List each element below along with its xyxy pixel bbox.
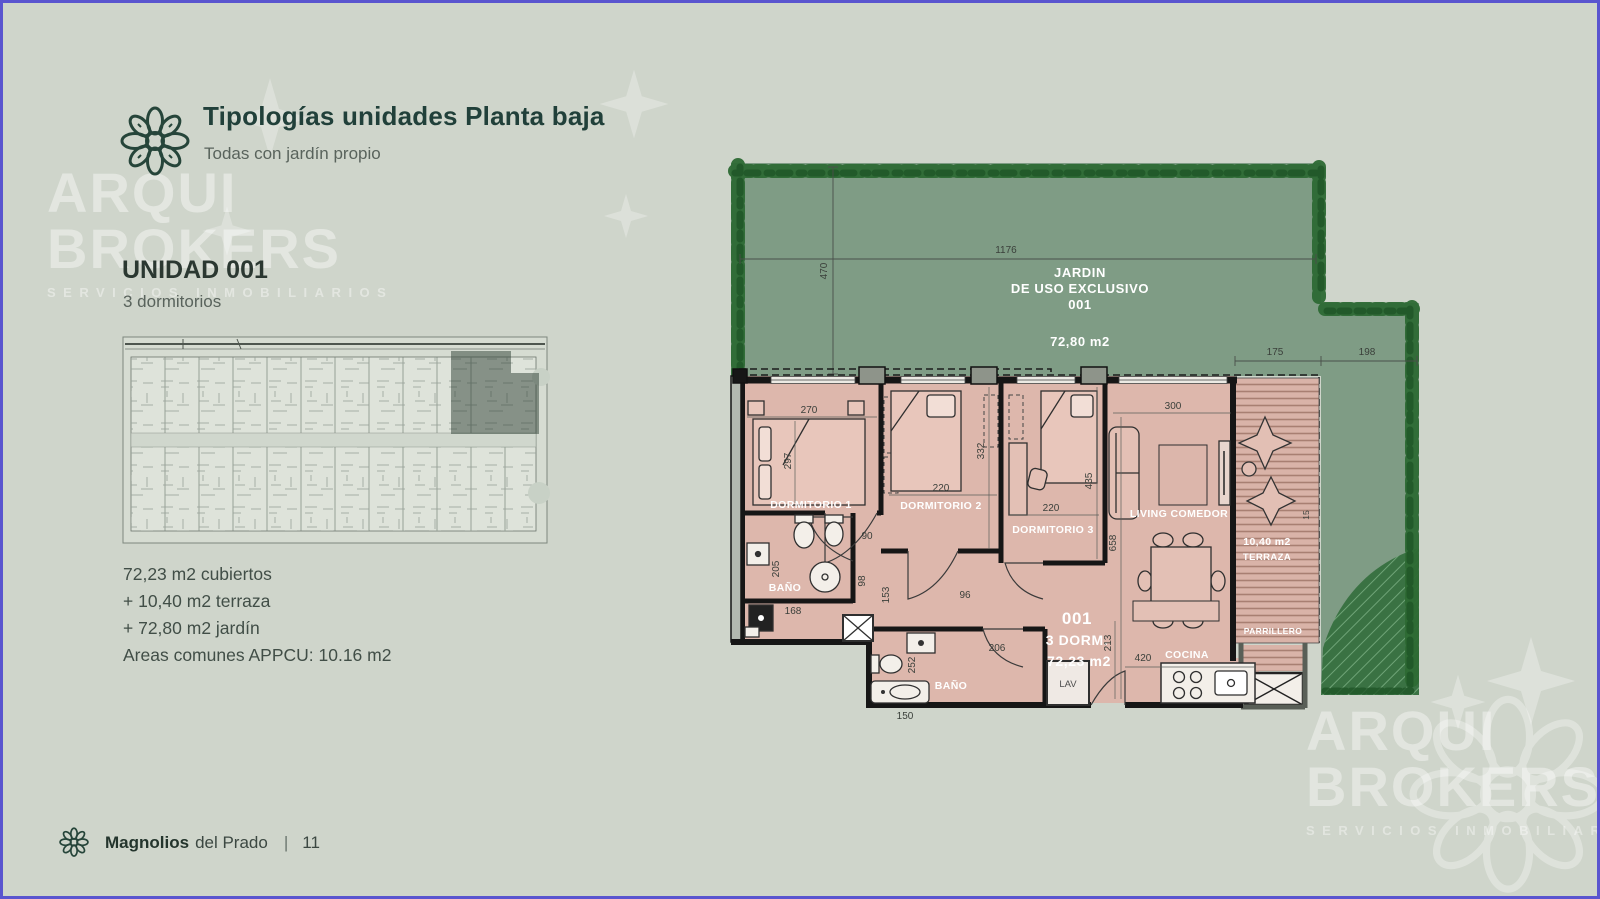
unit-tag-number: 001 bbox=[1062, 609, 1092, 628]
footer-project-suffix: del Prado bbox=[195, 833, 268, 853]
dim-15: 15 bbox=[1301, 510, 1311, 520]
sideboard bbox=[1133, 601, 1219, 621]
watermark-line1: ARQUI bbox=[47, 165, 393, 221]
dim-153: 153 bbox=[881, 586, 892, 603]
sofa bbox=[1109, 427, 1139, 519]
label-parrillero: PARRILLERO bbox=[1244, 626, 1303, 636]
unit-areas: 72,23 m2 cubiertos + 10,40 m2 terraza + … bbox=[123, 561, 391, 669]
footer-project-name: Magnolios bbox=[105, 833, 189, 853]
brochure-page: ARQUI BROKERS SERVICIOS INMOBILIARIOS bbox=[0, 0, 1600, 899]
dim-96: 96 bbox=[959, 590, 971, 601]
dim-213: 213 bbox=[1103, 634, 1114, 651]
area-terrace: + 10,40 m2 terraza bbox=[123, 588, 391, 615]
label-lav: LAV bbox=[1059, 679, 1077, 690]
coffee-table bbox=[1159, 445, 1207, 505]
watermark-line1: ARQUI bbox=[1306, 703, 1600, 759]
area-covered: 72,23 m2 cubiertos bbox=[123, 561, 391, 588]
star-watermark bbox=[595, 65, 673, 143]
dim-garden-d: 470 bbox=[819, 262, 830, 279]
label-terraza: TERRAZA bbox=[1243, 552, 1291, 563]
dim-297: 297 bbox=[783, 452, 794, 469]
dim-220a: 220 bbox=[933, 483, 950, 494]
dim-270: 270 bbox=[801, 405, 818, 416]
dim-terr-w: 175 bbox=[1267, 347, 1284, 358]
garden-label-1: JARDIN bbox=[1054, 265, 1106, 280]
label-cocina: COCINA bbox=[1165, 649, 1209, 661]
label-bano1: BAÑO bbox=[769, 581, 802, 594]
dim-205: 205 bbox=[771, 560, 782, 577]
unit-name: UNIDAD 001 bbox=[122, 256, 268, 285]
area-common: Areas comunes APPCU: 10.16 m2 bbox=[123, 642, 391, 669]
footer: Magnolios del Prado | 11 bbox=[55, 823, 555, 863]
page-subtitle: Todas con jardín propio bbox=[204, 144, 381, 164]
watermark-line3: SERVICIOS INMOBILIARIOS bbox=[1306, 824, 1600, 837]
garden-label-2: DE USO EXCLUSIVO bbox=[1011, 281, 1149, 296]
desk bbox=[1009, 443, 1027, 515]
kitchen-counter bbox=[1161, 663, 1255, 703]
label-dorm2: DORMITORIO 2 bbox=[900, 500, 982, 512]
dim-252: 252 bbox=[907, 656, 918, 673]
unit-tag-type: 3 DORM. bbox=[1046, 632, 1109, 648]
page-title: Tipologías unidades Planta baja bbox=[203, 101, 605, 132]
dim-206: 206 bbox=[989, 643, 1006, 654]
label-dorm3: DORMITORIO 3 bbox=[1012, 524, 1094, 536]
label-living: LIVING COMEDOR bbox=[1130, 508, 1228, 520]
dim-220b: 220 bbox=[1043, 503, 1060, 514]
dim-658: 658 bbox=[1108, 534, 1119, 551]
unit-bedrooms: 3 dormitorios bbox=[123, 292, 221, 312]
duct-shaft bbox=[843, 615, 873, 641]
garden-label-3: 001 bbox=[1068, 297, 1092, 312]
dim-90: 90 bbox=[861, 531, 873, 542]
label-bano2: BAÑO bbox=[935, 679, 968, 692]
label-terraza-area: 10,40 m2 bbox=[1243, 536, 1291, 548]
dim-420: 420 bbox=[1135, 653, 1152, 664]
small-fixture bbox=[745, 627, 759, 637]
dim-side-w: 198 bbox=[1359, 347, 1376, 358]
garden-area-label: 72,80 m2 bbox=[1050, 334, 1110, 349]
floor-plan: JARDIN DE USO EXCLUSIVO 001 72,80 m2 DOR… bbox=[703, 151, 1433, 736]
dim-garden-w: 1176 bbox=[995, 245, 1017, 256]
dim-300: 300 bbox=[1165, 401, 1182, 412]
star-watermark bbox=[601, 191, 651, 241]
dim-98: 98 bbox=[857, 575, 868, 587]
footer-flower-icon bbox=[55, 824, 93, 862]
dim-150: 150 bbox=[897, 711, 914, 722]
overview-plan bbox=[121, 333, 551, 547]
unit-tag-area: 72,23 m2 bbox=[1047, 653, 1111, 669]
dim-168: 168 bbox=[785, 606, 802, 617]
dim-435: 435 bbox=[1084, 472, 1095, 489]
dim-332: 332 bbox=[976, 442, 987, 459]
area-garden: + 72,80 m2 jardín bbox=[123, 615, 391, 642]
label-dorm1: DORMITORIO 1 bbox=[770, 499, 852, 511]
footer-separator: | bbox=[284, 833, 288, 853]
footer-page-number: 11 bbox=[302, 833, 320, 853]
tv-unit bbox=[1219, 441, 1230, 505]
logo-flower-icon bbox=[119, 98, 191, 188]
watermark-bottom-right: ARQUI BROKERS SERVICIOS INMOBILIARIOS bbox=[1306, 703, 1600, 837]
watermark-line2: BROKERS bbox=[1306, 759, 1600, 815]
